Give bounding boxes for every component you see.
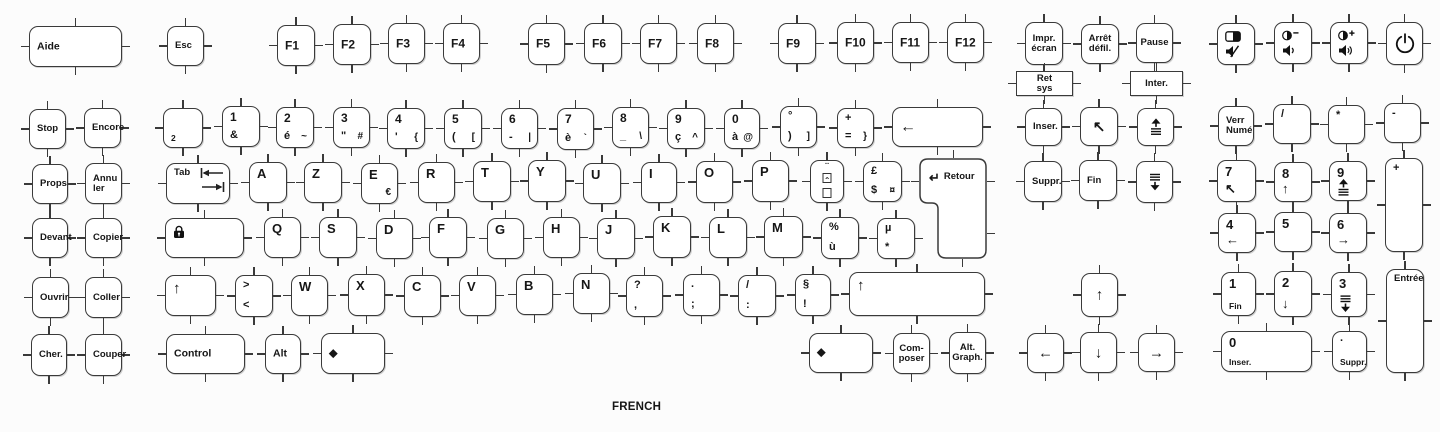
tick-mark bbox=[282, 326, 283, 334]
tick-mark bbox=[1117, 180, 1125, 181]
tick-mark bbox=[962, 259, 963, 267]
tick-mark bbox=[422, 267, 423, 275]
tick-mark bbox=[839, 209, 840, 217]
tick-mark bbox=[157, 295, 165, 296]
key-section-exclamation: §! bbox=[795, 274, 831, 316]
tick-mark bbox=[77, 237, 85, 238]
tick-mark bbox=[294, 99, 295, 107]
key-3-quote: 3"# bbox=[333, 107, 370, 148]
tick-mark bbox=[1321, 232, 1329, 233]
tick-mark bbox=[1154, 203, 1155, 211]
tick-mark bbox=[1423, 43, 1431, 44]
tick-mark bbox=[1367, 351, 1375, 352]
key-4-apostrophe-label: ' bbox=[395, 132, 398, 144]
tick-mark bbox=[796, 64, 797, 72]
tick-mark bbox=[370, 127, 378, 128]
tick-mark bbox=[351, 65, 352, 73]
tick-mark bbox=[311, 237, 319, 238]
tick-mark bbox=[1128, 181, 1136, 182]
tick-mark bbox=[394, 210, 395, 218]
key-power-label bbox=[1394, 33, 1416, 55]
tick-mark bbox=[205, 374, 206, 382]
tick-mark bbox=[49, 156, 50, 164]
tick-mark bbox=[491, 153, 492, 161]
tick-mark bbox=[295, 66, 296, 74]
tick-mark bbox=[685, 149, 686, 157]
tick-mark bbox=[1312, 42, 1320, 43]
key-6-hyphen-label: 6 bbox=[509, 113, 516, 126]
key-f3-label: F3 bbox=[396, 37, 410, 50]
tick-mark bbox=[802, 181, 810, 182]
tick-mark bbox=[24, 297, 32, 298]
key-y: Y bbox=[528, 160, 566, 202]
tick-mark bbox=[77, 354, 85, 355]
tick-mark bbox=[874, 127, 882, 128]
key-f10: F10 bbox=[837, 22, 874, 64]
tick-mark bbox=[155, 127, 163, 128]
tick-mark bbox=[158, 183, 166, 184]
tick-mark bbox=[1346, 97, 1347, 105]
tick-mark bbox=[227, 295, 235, 296]
tick-mark bbox=[546, 65, 547, 73]
tick-mark bbox=[122, 46, 130, 47]
tick-mark bbox=[241, 182, 249, 183]
key-f6: F6 bbox=[584, 23, 622, 64]
tick-mark bbox=[855, 148, 856, 156]
key-1-ampersand: 1& bbox=[222, 106, 260, 147]
key-mute bbox=[1217, 23, 1255, 65]
key-numpad-5: 5 bbox=[1274, 212, 1312, 252]
key-j-label: J bbox=[605, 223, 612, 237]
tick-mark bbox=[122, 237, 130, 238]
key-k: K bbox=[653, 216, 691, 258]
tick-mark bbox=[1423, 204, 1431, 205]
tick-mark bbox=[1347, 205, 1348, 213]
tick-mark bbox=[691, 236, 699, 237]
key-f6-label: F6 bbox=[592, 37, 606, 50]
tick-mark bbox=[295, 17, 296, 25]
tick-mark bbox=[257, 353, 265, 354]
tick-mark bbox=[309, 316, 310, 324]
key-verr-nume-label: Verr Numé bbox=[1226, 116, 1252, 137]
tick-mark bbox=[122, 183, 130, 184]
key-k-label: K bbox=[661, 221, 670, 235]
key-backspace: ← bbox=[892, 107, 983, 147]
tick-mark bbox=[967, 324, 968, 332]
nw-arrow-icon: ↖ bbox=[1093, 119, 1106, 134]
tick-mark bbox=[591, 265, 592, 273]
tick-mark bbox=[575, 100, 576, 108]
key-3-quote-label: 3 bbox=[341, 112, 348, 125]
key-d: D bbox=[376, 218, 413, 259]
tick-mark bbox=[447, 258, 448, 266]
tick-mark bbox=[839, 259, 840, 267]
tick-mark bbox=[328, 295, 336, 296]
tick-mark bbox=[1073, 294, 1081, 295]
tick-mark bbox=[197, 155, 198, 163]
left-arrow-icon: ← bbox=[1038, 346, 1053, 361]
key-pause-label: Pause bbox=[1141, 38, 1169, 48]
tick-mark bbox=[462, 149, 463, 157]
tick-mark bbox=[282, 258, 283, 266]
key-1-ampersand-label: & bbox=[230, 130, 238, 142]
key-numpad-9: 9 bbox=[1329, 161, 1367, 201]
tick-mark bbox=[455, 182, 463, 183]
tick-mark bbox=[436, 128, 444, 129]
tick-mark bbox=[197, 204, 198, 212]
tick-mark bbox=[1008, 83, 1016, 84]
key-e-label: E bbox=[369, 168, 378, 182]
key-page-up-label bbox=[1149, 118, 1162, 135]
tick-mark bbox=[66, 128, 74, 129]
key-f4-label: F4 bbox=[451, 37, 465, 50]
tick-mark bbox=[204, 45, 212, 46]
tick-mark bbox=[885, 353, 893, 354]
key-composer-label: Com- poser bbox=[899, 343, 925, 364]
key-pound-dollar-label: $ bbox=[871, 185, 877, 197]
tick-mark bbox=[635, 238, 643, 239]
tab-icon bbox=[200, 167, 225, 193]
tick-mark bbox=[610, 293, 618, 294]
tick-mark bbox=[47, 149, 48, 157]
key-x: X bbox=[348, 274, 385, 316]
tick-mark bbox=[671, 258, 672, 266]
page-down-icon bbox=[1339, 295, 1352, 312]
key-y-label: Y bbox=[536, 165, 545, 179]
tick-mark bbox=[1072, 352, 1080, 353]
key-coller-label: Coller bbox=[93, 292, 120, 302]
key-arrow-down-label: ↓ bbox=[1095, 344, 1103, 361]
tick-mark bbox=[1154, 63, 1155, 71]
key-arrow-down: ↓ bbox=[1080, 332, 1117, 373]
tick-mark bbox=[916, 316, 917, 324]
tick-mark bbox=[351, 99, 352, 107]
key-s-label: S bbox=[327, 222, 336, 236]
key-a: A bbox=[249, 162, 287, 203]
tick-mark bbox=[520, 180, 528, 181]
tick-mark bbox=[1292, 14, 1293, 22]
tick-mark bbox=[1323, 294, 1331, 295]
tick-mark bbox=[287, 182, 295, 183]
tick-mark bbox=[337, 258, 338, 266]
tick-mark bbox=[1071, 180, 1079, 181]
tick-mark bbox=[829, 42, 837, 43]
key-f12: F12 bbox=[947, 22, 984, 63]
key-pound-dollar-label: £ bbox=[871, 166, 877, 178]
tick-mark bbox=[986, 352, 994, 353]
key-t: T bbox=[473, 161, 511, 202]
tick-mark bbox=[715, 64, 716, 72]
tick-mark bbox=[1312, 351, 1320, 352]
tick-mark bbox=[511, 181, 519, 182]
tick-mark bbox=[549, 128, 557, 129]
key-mu-asterisk-label: * bbox=[885, 242, 889, 254]
tick-mark bbox=[575, 150, 576, 158]
tick-mark bbox=[747, 237, 755, 238]
tick-mark bbox=[1238, 264, 1239, 272]
key-2-eacute-label: 2 bbox=[284, 112, 291, 125]
tick-mark bbox=[1256, 293, 1264, 294]
tick-mark bbox=[48, 326, 49, 334]
tick-mark bbox=[760, 128, 768, 129]
tick-mark bbox=[1424, 320, 1432, 321]
tick-mark bbox=[1348, 264, 1349, 272]
tick-mark bbox=[734, 43, 742, 44]
key-entree-label: Entrée bbox=[1394, 274, 1424, 284]
tick-mark bbox=[1156, 325, 1157, 333]
tick-mark bbox=[1043, 14, 1044, 22]
key-f8-label: F8 bbox=[705, 37, 719, 50]
key-f5: F5 bbox=[528, 23, 565, 65]
tick-mark bbox=[929, 42, 937, 43]
key-pound-dollar-label: ¤ bbox=[889, 186, 895, 197]
tick-mark bbox=[1292, 204, 1293, 212]
tick-mark bbox=[618, 295, 626, 296]
key-arrow-up: ↑ bbox=[1081, 273, 1118, 317]
up-arrow-icon: ↑ bbox=[173, 281, 181, 296]
key-meta-left-label: ◆ bbox=[329, 345, 337, 362]
key-stop: Stop bbox=[29, 109, 66, 149]
tick-mark bbox=[826, 152, 827, 160]
key-retour-label: ↵Retour bbox=[929, 171, 975, 184]
key-3-quote-label: " bbox=[341, 131, 346, 143]
tick-mark bbox=[260, 126, 268, 127]
key-0-agrave-label: 0 bbox=[732, 113, 739, 126]
key-aide-label: Aide bbox=[37, 41, 60, 52]
key-mu-asterisk-label: µ bbox=[885, 223, 891, 235]
tick-mark bbox=[602, 15, 603, 23]
tick-mark bbox=[467, 237, 475, 238]
key-numpad-8: 8↑ bbox=[1274, 162, 1312, 202]
tick-mark bbox=[1156, 63, 1157, 71]
tick-mark bbox=[1403, 150, 1404, 158]
tick-mark bbox=[77, 183, 85, 184]
tick-mark bbox=[658, 203, 659, 211]
tick-mark bbox=[546, 202, 547, 210]
key-meta-left: ◆ bbox=[321, 333, 385, 374]
key-b-label: B bbox=[524, 279, 533, 293]
tick-mark bbox=[340, 294, 348, 295]
tick-mark bbox=[1098, 373, 1099, 381]
tick-mark bbox=[203, 127, 211, 128]
tick-mark bbox=[756, 267, 757, 275]
key-greater-less: >< bbox=[235, 275, 273, 317]
tick-mark bbox=[309, 267, 310, 275]
tick-mark bbox=[770, 202, 771, 210]
key-numpad-minus: - bbox=[1384, 103, 1421, 143]
tick-mark bbox=[622, 43, 630, 44]
tick-mark bbox=[301, 353, 309, 354]
key-0-agrave-label: à bbox=[732, 132, 738, 144]
key-arrow-left: ← bbox=[1027, 333, 1064, 373]
tick-mark bbox=[1266, 181, 1274, 182]
tick-mark bbox=[268, 127, 276, 128]
key-section-exclamation-label: § bbox=[803, 279, 809, 291]
tick-mark bbox=[385, 353, 393, 354]
key-arret-defil: Arrêt défil. bbox=[1081, 24, 1119, 64]
tick-mark bbox=[604, 127, 612, 128]
tick-mark bbox=[882, 153, 883, 161]
tick-mark bbox=[580, 237, 588, 238]
key-i-label: I bbox=[649, 167, 653, 181]
key-esc: Esc bbox=[167, 26, 204, 66]
tick-mark bbox=[1210, 232, 1218, 233]
key-verrouillage-maj-label bbox=[173, 223, 185, 240]
tick-mark bbox=[1129, 126, 1137, 127]
key-numpad-1-label: Fin bbox=[1229, 302, 1242, 311]
tick-mark bbox=[783, 258, 784, 266]
tick-mark bbox=[1266, 323, 1267, 331]
key-fin-label: Fin bbox=[1087, 175, 1101, 185]
key-suppr: Suppr. bbox=[1024, 161, 1062, 202]
tick-mark bbox=[50, 269, 51, 277]
tick-mark bbox=[591, 314, 592, 322]
tick-mark bbox=[1016, 181, 1024, 182]
tick-mark bbox=[1312, 181, 1320, 182]
key-numpad-2-label: 2 bbox=[1282, 276, 1289, 290]
tick-mark bbox=[519, 149, 520, 157]
tick-mark bbox=[205, 326, 206, 334]
tick-mark bbox=[1347, 253, 1348, 261]
tick-mark bbox=[715, 15, 716, 23]
key-power bbox=[1386, 22, 1423, 65]
tick-mark bbox=[435, 43, 443, 44]
tick-mark bbox=[855, 64, 856, 72]
tick-mark bbox=[1213, 293, 1221, 294]
tick-mark bbox=[812, 266, 813, 274]
tick-mark bbox=[1265, 123, 1273, 124]
tick-mark bbox=[566, 180, 574, 181]
tick-mark bbox=[1348, 64, 1349, 72]
key-6-hyphen-label: - bbox=[509, 132, 513, 144]
tick-mark bbox=[352, 374, 353, 382]
tick-mark bbox=[756, 236, 764, 237]
tick-mark bbox=[1292, 252, 1293, 260]
key-0-agrave-label: @ bbox=[743, 133, 753, 144]
key-4-apostrophe-label: 4 bbox=[395, 113, 402, 126]
tick-mark bbox=[776, 295, 784, 296]
tick-mark bbox=[772, 126, 780, 127]
tick-mark bbox=[701, 316, 702, 324]
key-f7-label: F7 bbox=[648, 37, 662, 50]
key-numpad-2-label: ↓ bbox=[1282, 295, 1289, 312]
tick-mark bbox=[1376, 122, 1384, 123]
tick-mark bbox=[158, 353, 166, 354]
tick-mark bbox=[1073, 43, 1081, 44]
key-2-eacute: 2é~ bbox=[276, 107, 314, 148]
key-g: G bbox=[487, 218, 524, 259]
key-question-comma: ?, bbox=[626, 275, 663, 317]
key-8-underscore-label: _ bbox=[620, 131, 626, 143]
key-home-label: ↖ bbox=[1093, 118, 1106, 135]
key-question-comma-label: , bbox=[634, 300, 637, 312]
tick-mark bbox=[984, 42, 992, 43]
key-page-down-label bbox=[1148, 173, 1161, 190]
tick-mark bbox=[798, 98, 799, 106]
tick-mark bbox=[546, 15, 547, 23]
tick-mark bbox=[688, 181, 696, 182]
tick-mark bbox=[659, 128, 667, 129]
page-down-icon bbox=[1148, 174, 1161, 191]
tick-mark bbox=[953, 150, 954, 158]
tick-mark bbox=[182, 148, 183, 156]
tick-mark bbox=[1368, 42, 1376, 43]
tick-mark bbox=[538, 128, 546, 129]
key-period-semicolon-label: ; bbox=[691, 299, 695, 311]
tick-mark bbox=[644, 317, 645, 325]
contrast-icon bbox=[1225, 31, 1241, 42]
key-f7: F7 bbox=[640, 23, 677, 64]
key-retour: ↵Retour bbox=[920, 159, 986, 258]
speaker-loud-icon bbox=[1338, 44, 1354, 57]
key-x-label: X bbox=[356, 279, 365, 293]
left-arrow-small-icon: ← bbox=[1226, 233, 1239, 246]
tick-mark bbox=[565, 293, 573, 294]
tick-mark bbox=[840, 373, 841, 381]
tick-mark bbox=[941, 352, 949, 353]
tick-mark bbox=[398, 183, 406, 184]
key-5-paren-label: ( bbox=[452, 132, 456, 144]
tick-mark bbox=[461, 64, 462, 72]
key-percent-ugrave-label: % bbox=[829, 222, 839, 234]
tick-mark bbox=[869, 238, 877, 239]
key-annuler: Annu ler bbox=[85, 163, 122, 204]
tick-mark bbox=[770, 152, 771, 160]
tick-mark bbox=[1321, 180, 1329, 181]
tick-mark bbox=[1292, 154, 1293, 162]
label-inter-label: Inter. bbox=[1145, 78, 1168, 88]
key-numpad-9-label bbox=[1337, 179, 1350, 196]
tick-mark bbox=[756, 317, 757, 325]
key-couper: Couper bbox=[85, 334, 122, 376]
tick-mark bbox=[796, 15, 797, 23]
tick-mark bbox=[1174, 126, 1182, 127]
tick-mark bbox=[789, 180, 797, 181]
tick-mark bbox=[817, 126, 825, 127]
key-props: Props bbox=[32, 164, 68, 204]
tick-mark bbox=[405, 100, 406, 108]
tick-mark bbox=[677, 182, 685, 183]
tick-mark bbox=[296, 182, 304, 183]
key-v: V bbox=[459, 275, 496, 316]
tick-mark bbox=[714, 203, 715, 211]
contrast-minus-icon bbox=[1282, 30, 1299, 41]
tick-mark bbox=[829, 127, 837, 128]
tick-mark bbox=[406, 15, 407, 23]
tick-mark bbox=[436, 203, 437, 211]
key-numpad-decimal-label: · bbox=[1340, 336, 1344, 348]
key-alt-graph-label: Alt. Graph. bbox=[952, 343, 983, 364]
tick-mark bbox=[240, 98, 241, 106]
key-dead-accents-label: ˆ bbox=[823, 179, 832, 198]
key-inser-label: Inser. bbox=[1033, 122, 1058, 132]
tick-mark bbox=[689, 43, 697, 44]
tick-mark bbox=[253, 317, 254, 325]
key-control: Control bbox=[166, 334, 245, 374]
tick-mark bbox=[159, 45, 167, 46]
tick-mark bbox=[244, 237, 252, 238]
key-pause: Pause bbox=[1136, 23, 1173, 63]
tick-mark bbox=[294, 148, 295, 156]
key-esc-label: Esc bbox=[175, 41, 192, 51]
tick-mark bbox=[491, 202, 492, 210]
tick-mark bbox=[602, 64, 603, 72]
key-f2: F2 bbox=[333, 24, 371, 65]
key-retour-text: Retour bbox=[944, 171, 975, 182]
tick-mark bbox=[535, 237, 543, 238]
tick-mark bbox=[47, 101, 48, 109]
right-arrow-icon: → bbox=[1149, 345, 1164, 360]
